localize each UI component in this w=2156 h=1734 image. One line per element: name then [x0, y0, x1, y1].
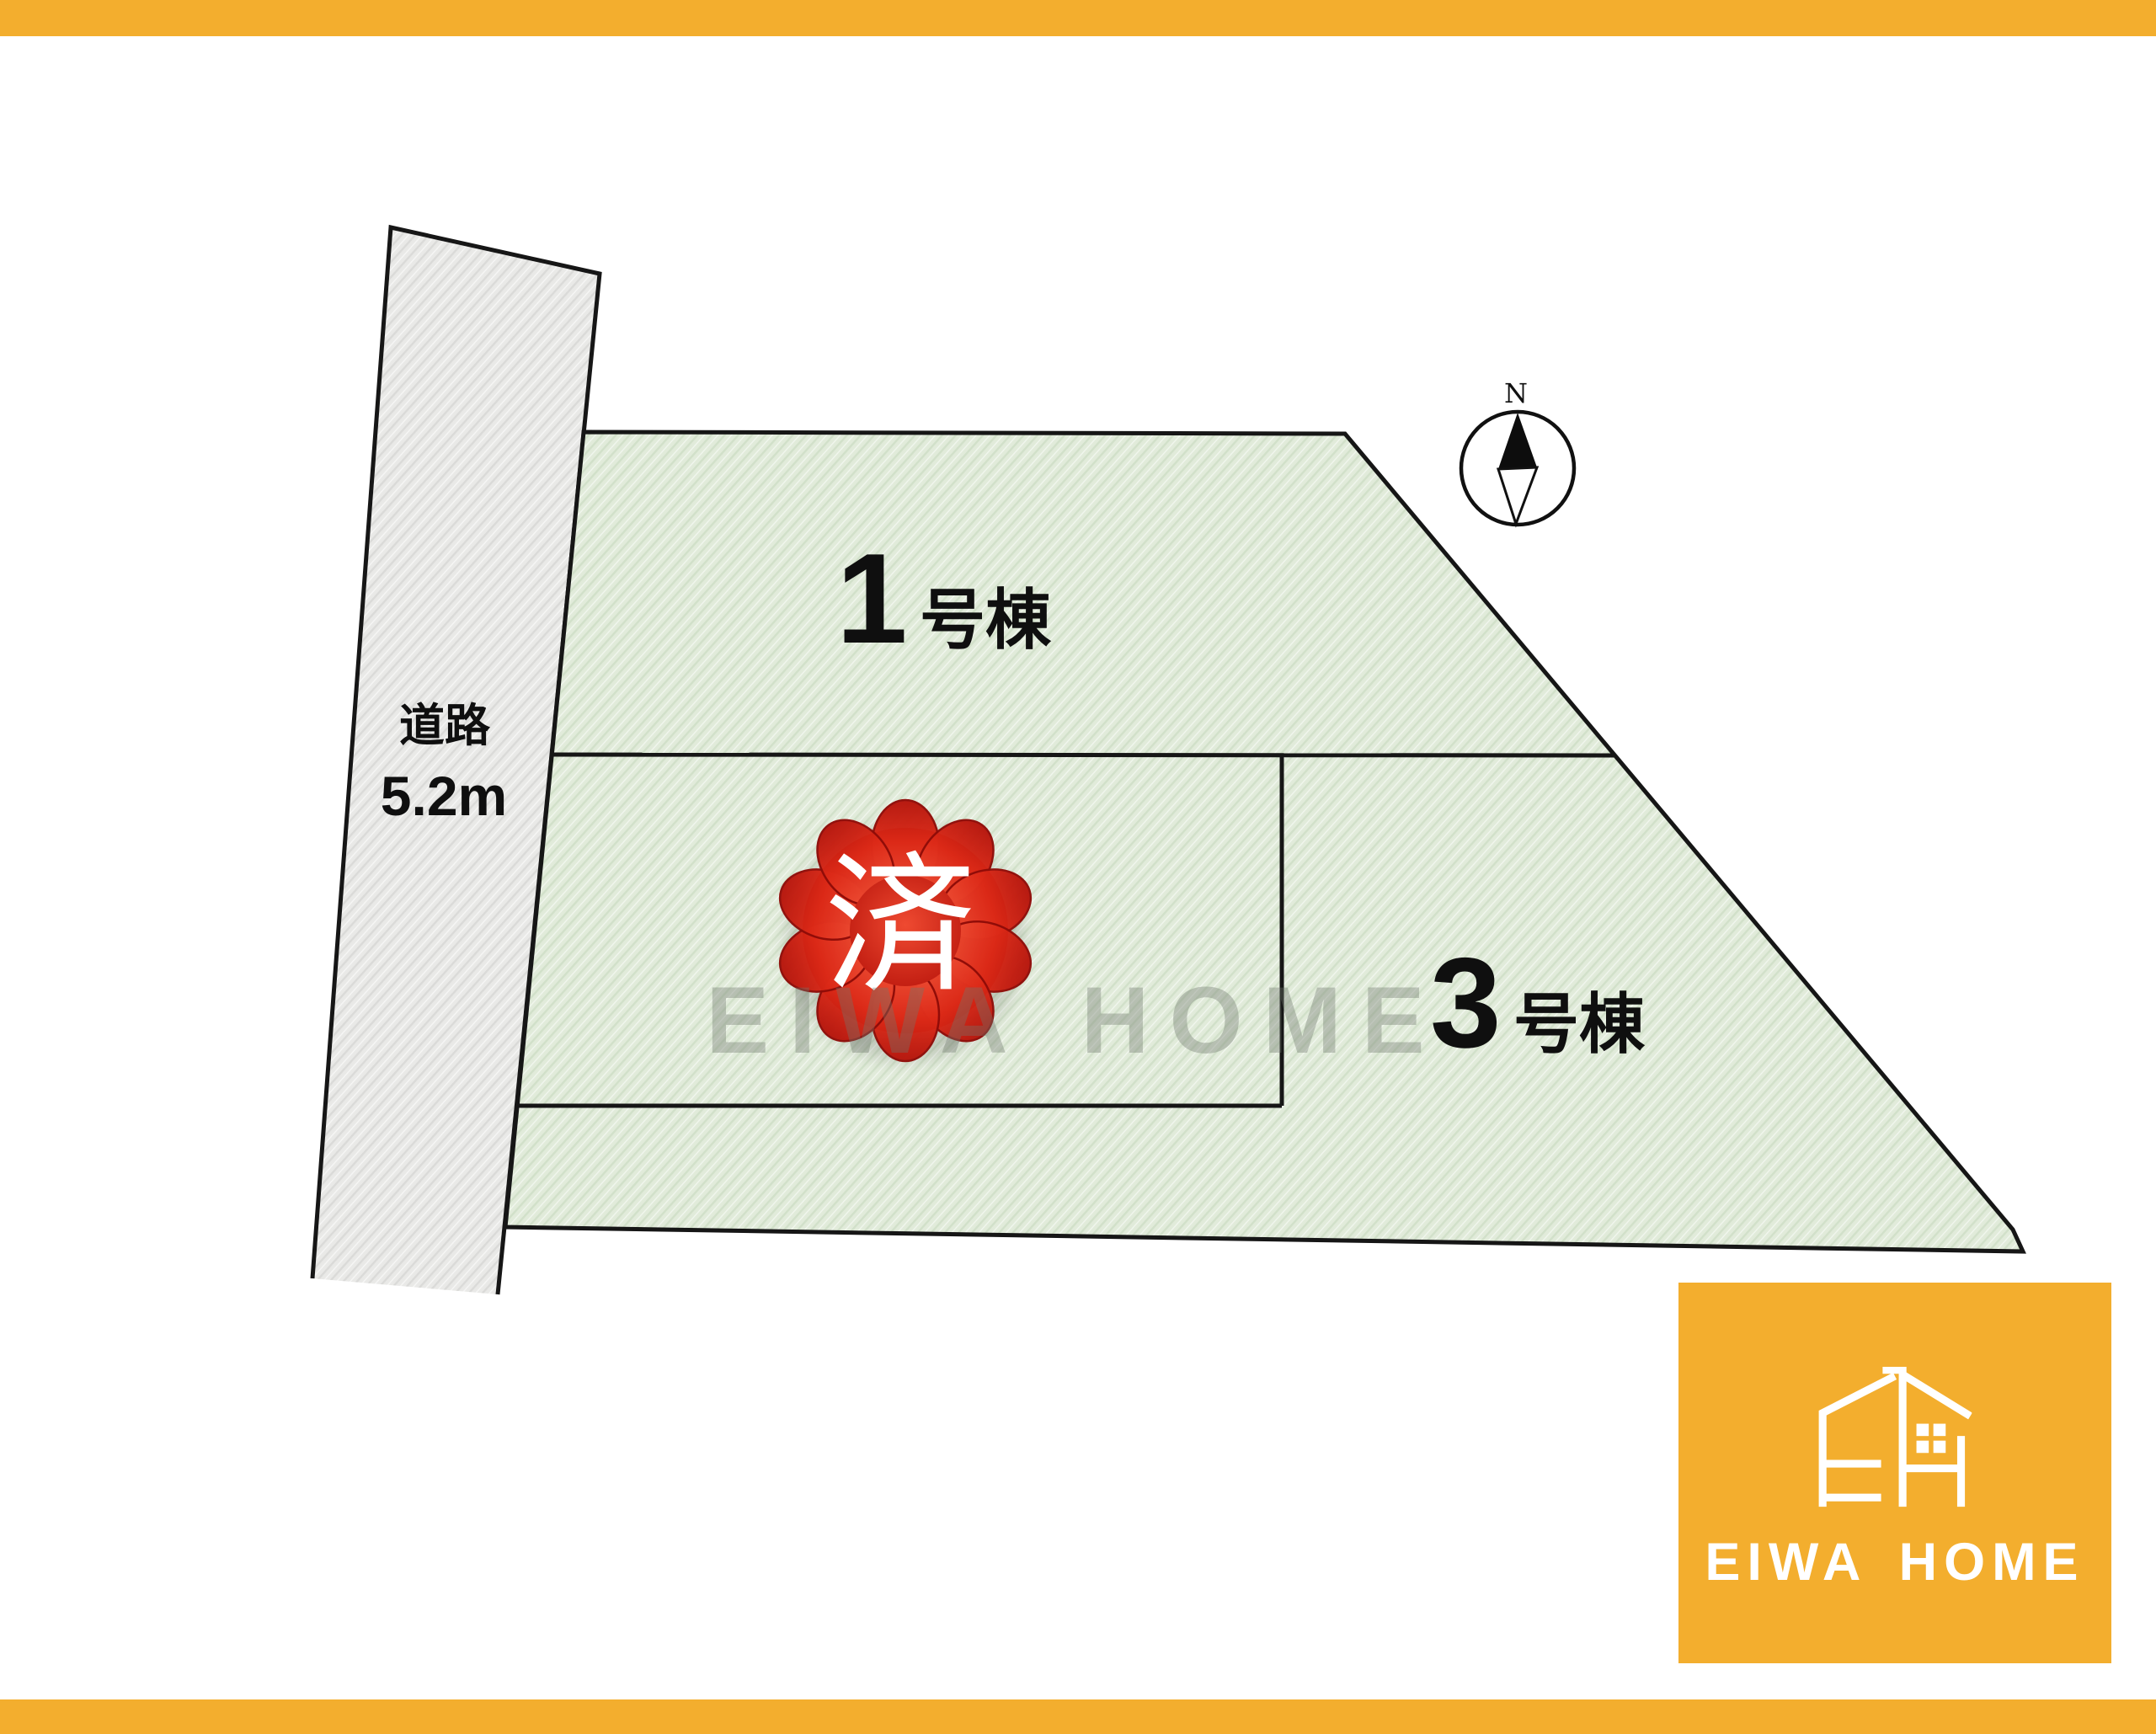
site-area	[505, 432, 2023, 1251]
bottom-accent-bar	[0, 1699, 2156, 1734]
logo-house-icon	[1815, 1367, 1975, 1508]
lot3-suffix: 号棟	[1513, 987, 1646, 1061]
lot1-number: 1	[836, 527, 908, 670]
road-name-label: 道路	[399, 701, 491, 751]
compass-north-label: N	[1504, 377, 1528, 409]
road-width-label: 5.2m	[381, 765, 507, 827]
compass: N	[1461, 377, 1574, 525]
eiwa-home-logo: EIWA HOME	[1678, 1283, 2111, 1663]
lot1-bottom-boundary	[552, 755, 1614, 755]
logo-brand-text: EIWA HOME	[1678, 1532, 2111, 1593]
site-plan-page: 道路 5.2m 1 号棟 3 号棟	[0, 0, 2156, 1734]
lot1-suffix: 号棟	[920, 583, 1052, 657]
watermark-text: EIWA HOME	[706, 968, 1444, 1073]
